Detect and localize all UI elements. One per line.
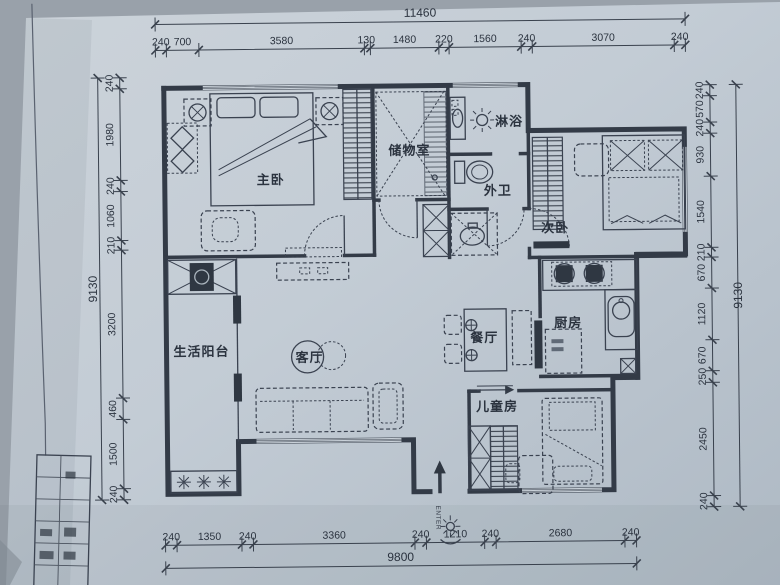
dim-left-total: 9130	[86, 275, 100, 302]
balcony-sliding-panel-1	[233, 296, 241, 324]
room-label-balcony: 生活阳台	[173, 344, 229, 360]
entry-label: ENTER	[434, 505, 441, 530]
dim-top-1: 700	[174, 36, 192, 48]
dim-top-2: 3580	[270, 35, 294, 47]
dim-left-6: 460	[107, 400, 119, 418]
dim-bottom-6: 240	[482, 528, 500, 540]
balcony-sliding-panel-2	[234, 374, 242, 402]
dim-top-5: 220	[435, 33, 453, 45]
dim-right-8: 670	[697, 346, 709, 364]
floor-plan-photo: ENTER 11460 240 700 3580 130 1480 220 15…	[0, 0, 780, 585]
dim-bottom-4: 240	[412, 529, 430, 541]
dim-top-4: 1480	[393, 34, 417, 46]
dim-bottom-total: 9800	[387, 550, 414, 564]
dim-right-1: 570	[694, 100, 706, 118]
dim-right-10: 2450	[697, 427, 709, 451]
room-label-second: 次卧	[541, 220, 569, 235]
dim-bottom-0: 240	[162, 531, 180, 543]
room-label-dining: 餐厅	[469, 330, 498, 345]
dim-left-1: 1980	[104, 123, 116, 147]
room-label-kitchen: 厨房	[554, 315, 582, 330]
dim-right-11: 240	[698, 492, 710, 510]
dim-top-total: 11460	[404, 5, 437, 19]
dim-top-7: 240	[518, 32, 536, 44]
dim-right-7: 1120	[696, 303, 708, 326]
dim-bottom-2: 240	[239, 530, 257, 542]
dim-right-5: 210	[695, 243, 707, 261]
dim-left-8: 240	[108, 485, 120, 503]
dim-right-2: 240	[694, 119, 706, 137]
dim-bottom-1: 1350	[198, 531, 222, 543]
dim-left-7: 1500	[107, 442, 119, 466]
dim-bottom-5: 1210	[444, 528, 468, 540]
second-bedroom-door-leaf	[533, 241, 569, 248]
dim-top-6: 1560	[473, 33, 497, 45]
room-label-kids: 儿童房	[475, 399, 518, 414]
room-label-storage: 储物室	[387, 143, 430, 158]
dim-right-0: 240	[694, 81, 706, 99]
dim-left-4: 210	[105, 237, 117, 255]
dim-left-2: 240	[105, 177, 117, 195]
dim-top-0: 240	[152, 36, 170, 48]
dim-right-6: 670	[696, 264, 708, 282]
dim-right-3: 930	[694, 146, 706, 164]
dim-right-4: 1540	[695, 200, 707, 224]
dim-bottom-8: 240	[622, 526, 640, 538]
dim-bottom-3: 3360	[322, 529, 346, 541]
dim-top-9: 240	[671, 31, 689, 43]
kitchen-sliding-panel	[534, 320, 543, 368]
dim-right-total: 9130	[731, 282, 745, 309]
dim-top-8: 3070	[591, 32, 615, 44]
dim-top-3: 130	[357, 34, 375, 46]
room-label-shower: 淋浴	[495, 114, 523, 129]
room-label-bath: 外卫	[483, 183, 512, 198]
paper-shadow-bottom	[0, 505, 780, 585]
dim-bottom-7: 2680	[549, 527, 573, 539]
dim-left-5: 3200	[106, 312, 118, 336]
dim-left-0: 240	[104, 74, 116, 92]
room-label-master: 主卧	[257, 172, 285, 187]
washing-machine-icon	[190, 263, 214, 291]
dim-right-9: 250	[697, 368, 709, 386]
dim-left-3: 1060	[105, 204, 117, 228]
room-label-living: 客厅	[296, 350, 324, 365]
